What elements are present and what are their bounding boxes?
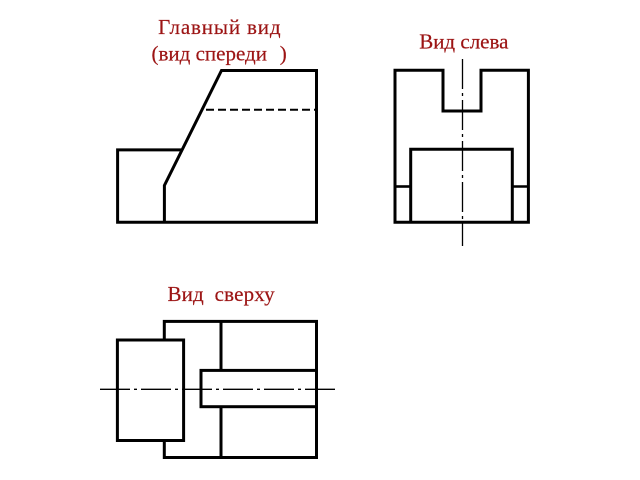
svg-text:Главный вид: Главный вид xyxy=(158,15,281,39)
svg-text:): ) xyxy=(280,41,287,65)
svg-text:(вид спереди: (вид спереди xyxy=(152,41,267,65)
svg-text:Вид слева: Вид слева xyxy=(419,29,509,53)
svg-text:Вид сверху: Вид сверху xyxy=(168,282,276,306)
